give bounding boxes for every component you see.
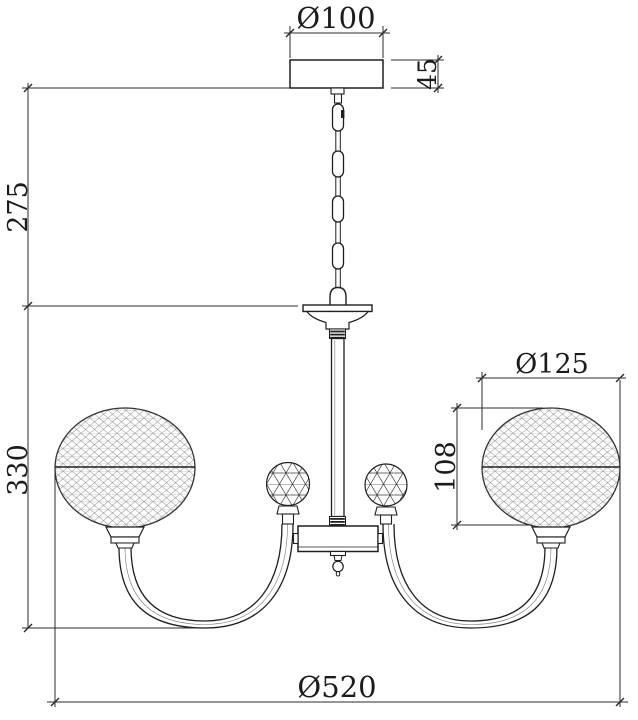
left-arm	[119, 524, 293, 628]
globe-socket	[106, 527, 144, 537]
dim-label-chain-drop: 275	[3, 181, 34, 233]
finial-neck	[334, 556, 342, 561]
dim-label-overall-width: Ø520	[297, 670, 376, 704]
top-flange	[303, 305, 372, 312]
stem-tube	[332, 339, 345, 517]
right-globe	[482, 408, 620, 548]
left-globe	[55, 408, 195, 548]
canopy-connector	[331, 88, 344, 94]
center-hub	[294, 526, 383, 576]
dim-label-body-drop: 330	[3, 444, 34, 496]
chain-link	[333, 243, 344, 269]
hook-loop	[330, 288, 346, 307]
ball-collar	[375, 507, 397, 515]
drawing-canvas: Ø100 45 275 330 Ø125	[0, 0, 638, 720]
left-crystal-ball	[267, 463, 310, 525]
dim-label-globe-diameter: Ø125	[515, 349, 589, 380]
hub-knob-right	[378, 534, 383, 544]
dim-label-globe-height: 108	[431, 441, 462, 493]
globe-socket	[532, 527, 570, 537]
dim-label-canopy-height: 45	[413, 58, 442, 90]
stem-top-assembly	[303, 288, 372, 339]
finial-ball	[333, 561, 343, 571]
finial-collar	[331, 552, 346, 556]
hub-knob-left	[294, 534, 299, 544]
hub-body	[298, 526, 378, 552]
finial-tip	[336, 572, 339, 577]
canopy-body	[290, 60, 383, 88]
chain-link	[333, 196, 344, 222]
dim-chain-drop: 275	[3, 83, 298, 310]
canopy-stub	[335, 94, 342, 103]
suspension-chain	[333, 104, 345, 292]
dim-canopy-height: 45	[391, 55, 444, 93]
dim-label-canopy-diameter: Ø100	[296, 1, 375, 35]
chandelier-technical-drawing: Ø100 45 275 330 Ø125	[0, 0, 638, 720]
canopy	[290, 60, 383, 103]
ball-stem	[381, 515, 392, 524]
chain-clasp	[341, 110, 344, 118]
right-arm	[383, 524, 557, 628]
chain-link	[333, 151, 344, 177]
central-stem	[330, 339, 346, 527]
right-crystal-ball	[365, 464, 407, 524]
bell-cup	[307, 312, 368, 330]
ball-stem	[283, 514, 294, 524]
ball-collar	[277, 506, 299, 514]
dim-canopy-diameter: Ø100	[284, 1, 390, 58]
